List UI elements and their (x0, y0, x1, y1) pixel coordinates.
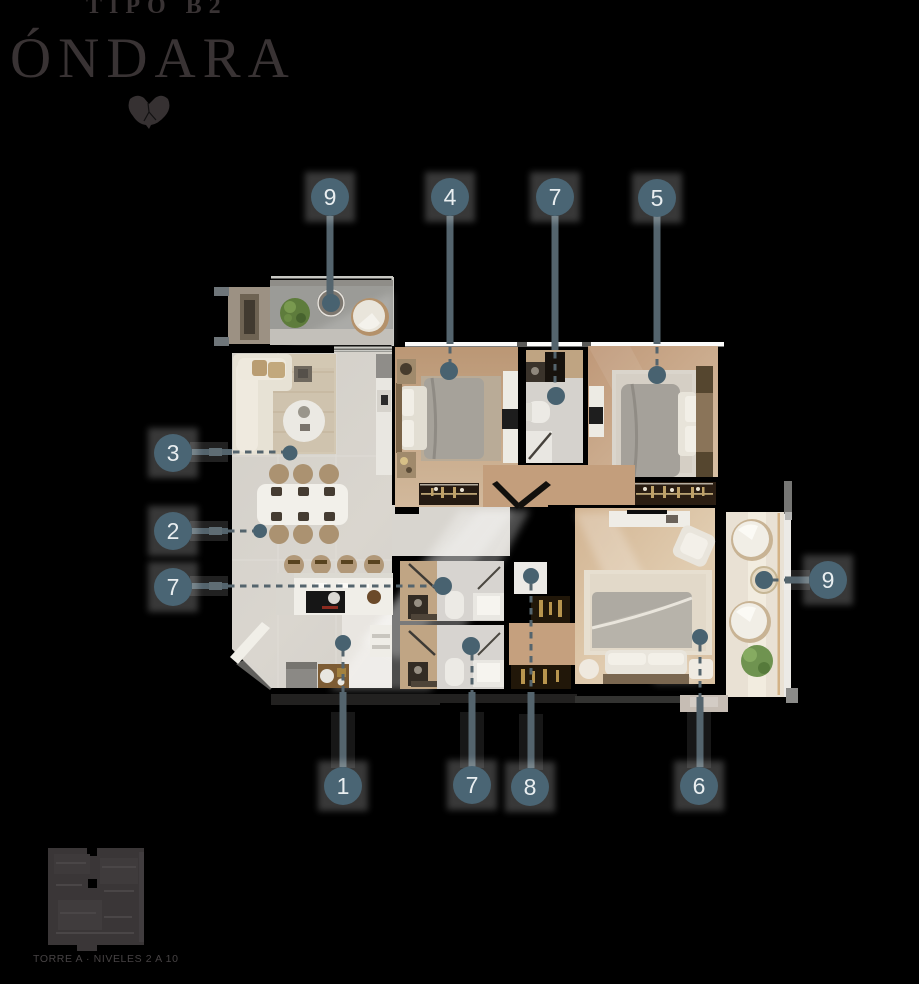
svg-text:7: 7 (167, 574, 180, 600)
svg-text:ÓNDARA: ÓNDARA (10, 27, 296, 90)
svg-text:7: 7 (466, 772, 479, 798)
svg-text:TIPO B2: TIPO B2 (86, 0, 228, 19)
svg-text:8: 8 (524, 774, 537, 800)
svg-text:2: 2 (167, 518, 180, 544)
svg-text:TORRE A · NIVELES 2 A 10: TORRE A · NIVELES 2 A 10 (33, 953, 179, 965)
svg-text:3: 3 (167, 440, 180, 466)
svg-text:1: 1 (337, 773, 350, 799)
svg-text:9: 9 (822, 567, 835, 593)
svg-text:9: 9 (324, 184, 337, 210)
svg-text:5: 5 (651, 185, 664, 211)
svg-text:7: 7 (549, 184, 562, 210)
svg-text:4: 4 (444, 184, 457, 210)
svg-text:6: 6 (693, 773, 706, 799)
